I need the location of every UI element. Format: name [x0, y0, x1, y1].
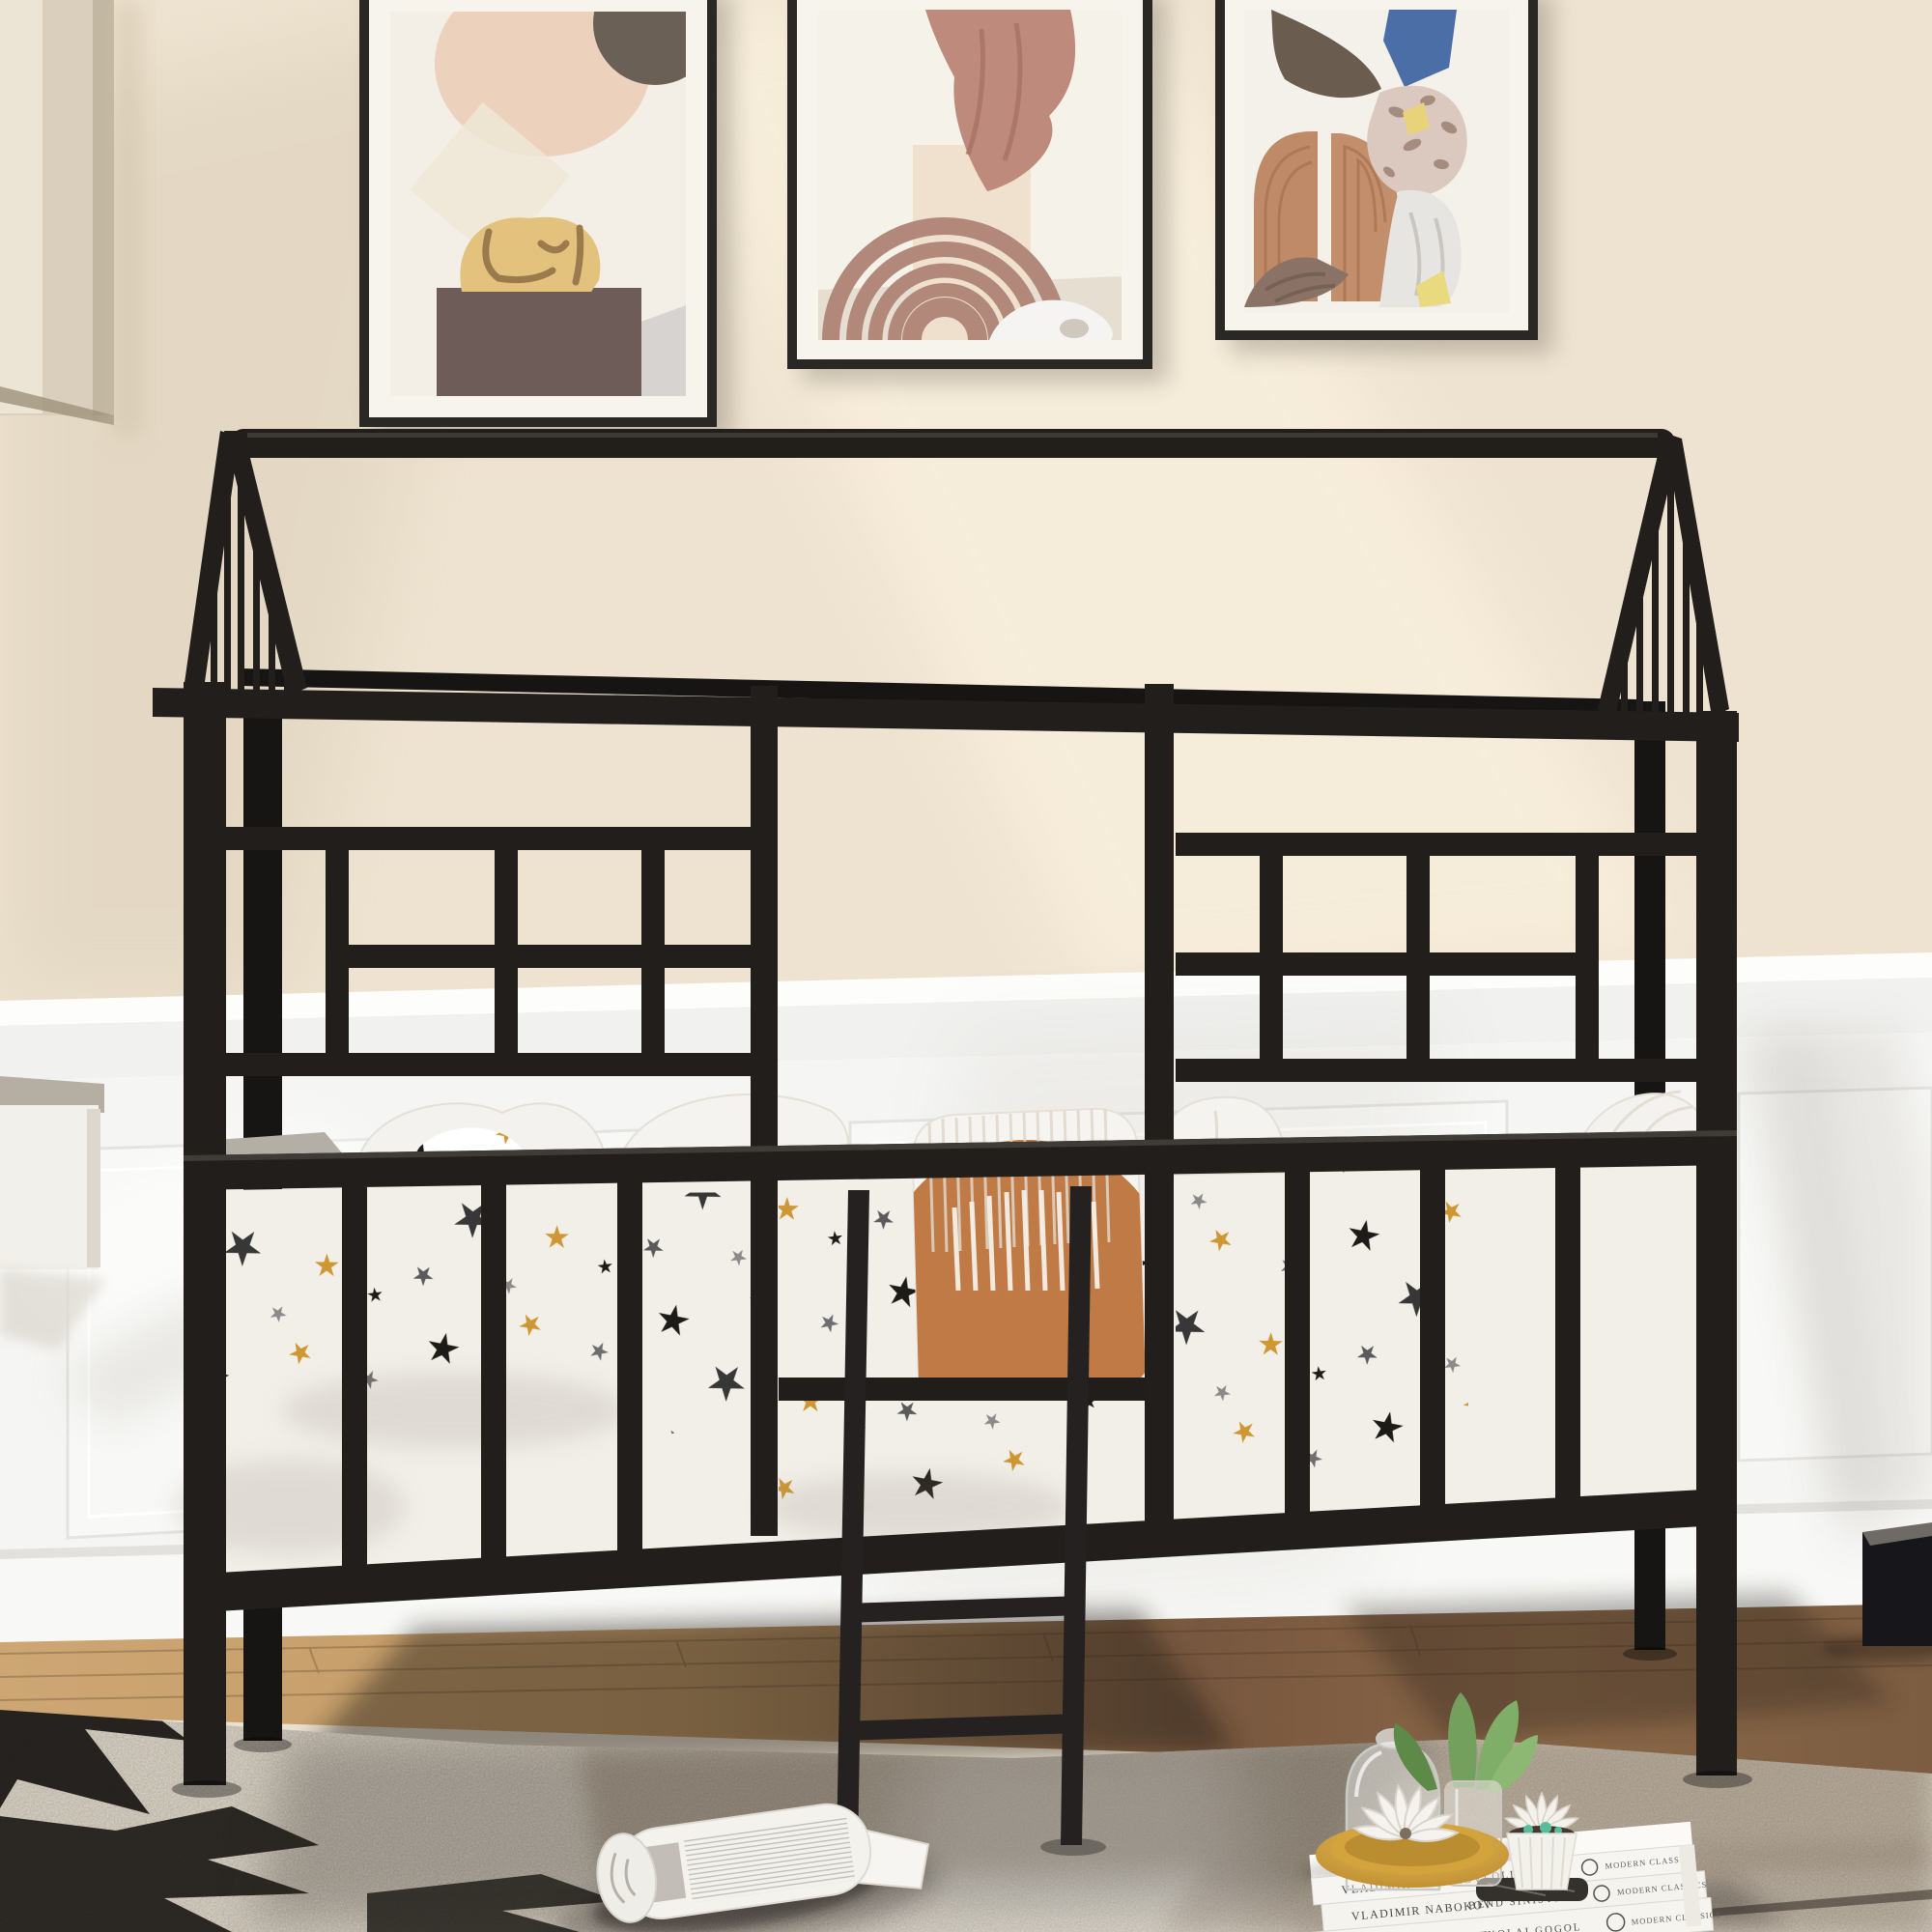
grid-bar	[349, 945, 753, 968]
box-front	[1862, 1532, 1932, 1646]
grid-bar	[226, 827, 753, 850]
post-front-left	[184, 682, 226, 1785]
grid-bar	[1406, 856, 1430, 1059]
baluster	[1285, 1171, 1310, 1540]
shelf-body	[0, 1105, 99, 1269]
succulent-center	[1400, 1828, 1411, 1839]
baluster	[617, 1182, 642, 1576]
room-scene: VLADIMIR NABOKOV LOLITA MODERN CLASSICS …	[0, 0, 1932, 1932]
baluster	[1555, 1165, 1580, 1523]
teal-pebble	[1540, 1822, 1551, 1833]
scene-canvas: VLADIMIR NABOKOV LOLITA MODERN CLASSICS …	[0, 0, 1932, 1932]
post-door-right	[1145, 684, 1174, 1526]
post-door-left	[751, 686, 778, 1536]
art-frame-middle	[787, 0, 1168, 383]
grid-bar	[495, 850, 518, 1053]
baluster	[342, 1187, 367, 1591]
wall-cabinet-corner	[0, 0, 141, 437]
cabinet-shadow	[114, 0, 141, 437]
grid-bar	[641, 850, 665, 1053]
cabinet-edge	[93, 0, 114, 415]
grid-bar	[1176, 1059, 1696, 1082]
art-frame-right	[1215, 0, 1553, 354]
ridge-highlight	[247, 433, 1658, 438]
grid-bar	[1260, 856, 1283, 1059]
baluster	[1420, 1168, 1445, 1531]
grid-bar	[1176, 833, 1696, 856]
cabinet-face	[0, 0, 43, 413]
shelf-side-shade	[87, 1109, 100, 1267]
art-plinth-box	[437, 288, 641, 396]
art-frame-left	[359, 0, 732, 440]
platform-bar	[779, 1378, 1146, 1401]
baluster	[481, 1184, 506, 1582]
white-planter	[1504, 1793, 1579, 1889]
grid-bar	[226, 1053, 753, 1076]
art-white-shape-hole	[1060, 319, 1089, 338]
grid-bar	[1176, 952, 1579, 976]
grid-bar	[326, 850, 349, 1053]
grid-bar	[1576, 856, 1599, 1059]
post-front-right	[1696, 711, 1737, 1776]
